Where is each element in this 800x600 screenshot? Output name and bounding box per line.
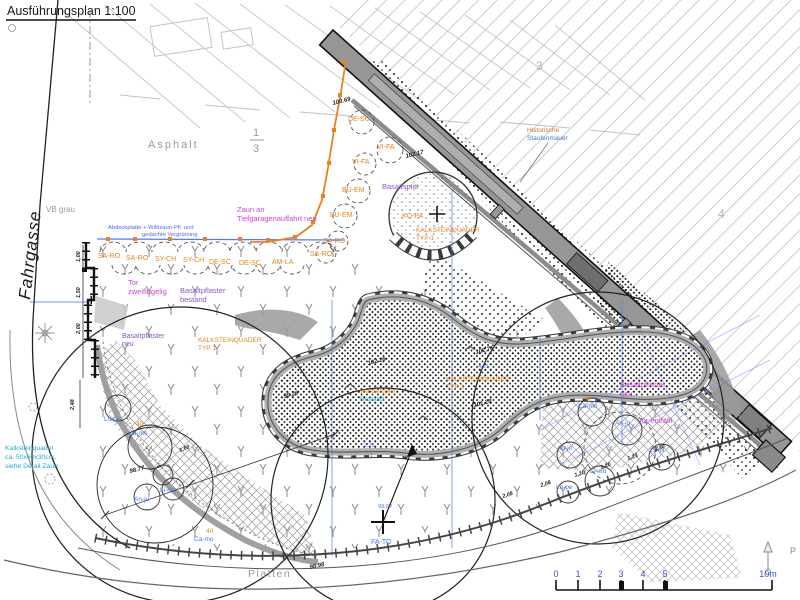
limestone-typ2: KALKSTEINQUADER: [446, 376, 510, 383]
leftbed-1: Ca-mo: [128, 430, 148, 437]
scale-2: 2: [597, 569, 602, 579]
leftbed-4: Ca-mo: [194, 536, 214, 543]
gate-note-2: zweiflügelig: [128, 287, 167, 296]
zone-4-label: 4: [718, 207, 725, 221]
elev-blue: 99.04: [378, 504, 392, 510]
basalt-bestand-1: Basaltpflaster: [180, 286, 226, 295]
tree-fato-label: FA-TO: [371, 539, 392, 546]
leftbed-2: An-ju: [134, 496, 150, 503]
limestone-note-3: siehe Detail Zaun: [5, 463, 58, 470]
limestone-note-1: Kalksteinquader: [5, 445, 54, 452]
shrub-0: DE-SC: [348, 116, 370, 123]
shrub-1: VI-FA: [377, 144, 395, 151]
dim-l0: 1,00: [76, 251, 82, 262]
limestone-typ1-left: KALKSTEINQUADER: [198, 337, 262, 344]
site-plan-canvas: Ausführungsplan 1:100 Fahrgasse Asphalt …: [0, 0, 800, 600]
dim-blue-b: 2,15: [364, 443, 375, 449]
basalt-bestand-2: bestand: [180, 295, 207, 304]
scale-bar: [556, 580, 772, 590]
vb-grau-label: VB grau: [46, 205, 75, 214]
basalt-neu-left-2: neu: [122, 341, 134, 348]
scale-3: 3: [618, 569, 623, 579]
zone-3-label: 3: [536, 59, 543, 73]
fraction-den: 3: [253, 143, 259, 155]
fraction-num: 1: [253, 127, 259, 139]
water-feature-2: Bestand: [360, 396, 384, 403]
plant-row-5: DE-SC: [239, 260, 261, 267]
sun-symbol: [35, 323, 55, 343]
dim-l1: 1,50: [76, 287, 82, 298]
fence-note-2: Tiefgaragenauffahrt neu: [237, 214, 317, 223]
elev-0: 100.69: [332, 97, 352, 107]
historic-wall-note-2: Staufenmauer: [527, 135, 569, 142]
scale-4: 4: [640, 569, 645, 579]
limestone-typ1-left-b: TYP 1: [198, 345, 216, 352]
basalt-neu-right-1: Basaltpflaster: [620, 380, 666, 389]
shrub-6: SA-RO: [310, 251, 333, 258]
scale-end: 10m: [759, 569, 777, 579]
plant-row-4: DE-SC: [209, 259, 231, 266]
scale-5: 5: [662, 569, 667, 579]
platten-label: Platten: [248, 568, 291, 580]
dim-blue-c: 1: [370, 453, 373, 459]
coping-note-1: Abdeckplatte + Wildzaun-Pfl. und: [108, 225, 194, 231]
leftbed-3: Li-mu: [160, 487, 177, 494]
basaltsplitt-label: Basaltsplitt: [382, 182, 419, 191]
shrub-3: BU-EM: [342, 187, 365, 194]
north-letter: P: [790, 546, 796, 556]
dim-l2: 2,00: [76, 323, 82, 335]
dim-blue-a: 4,31: [478, 364, 489, 370]
dim-l3: 2,48: [70, 398, 76, 411]
limestone-typ1-wall: KALKSTEINQUADER: [416, 227, 480, 234]
plan-drawing: Ausführungsplan 1:100 Fahrgasse Asphalt …: [0, 0, 800, 600]
gate-omitted-note: Tor entfällt: [638, 416, 674, 425]
leftbed-qty: 40: [136, 421, 144, 428]
shrub-4: BU-EM: [330, 212, 353, 219]
basalt-neu-right-2: neu: [620, 389, 633, 398]
street-label: Fahrgasse: [15, 210, 45, 301]
scale-1: 1: [575, 569, 580, 579]
plant-row-1: SA-RO: [126, 255, 149, 262]
scale-0: 0: [553, 569, 558, 579]
historic-wall-note-1: Historische: [527, 127, 560, 134]
rightbed-5: Lo-pe: [556, 484, 573, 491]
basalt-neu-left-1: Basaltpflaster: [122, 333, 165, 340]
leftbed-qty2: 40: [206, 528, 214, 535]
rightbed-2: An-ju: [557, 445, 573, 452]
plan-title: Ausführungsplan 1:100: [7, 4, 136, 18]
limestone-note-2: ca. 50x60x30cm,: [5, 454, 56, 461]
plant-row-2: SY-CH: [155, 256, 176, 263]
limestone-typ2-b: TYP 2: [446, 384, 464, 391]
asphalt-label: Asphalt: [148, 139, 199, 151]
rightbed-1: An-ju: [615, 420, 631, 427]
water-feature-1: Wasserspiel: [360, 388, 396, 395]
rightbed-qty: 40: [584, 395, 592, 402]
tree-kopa-label: KO-PA: [402, 213, 424, 220]
coping-note-2: gedachte Vergrünung: [142, 232, 197, 238]
limestone-typ1-wall-b: TYP 1: [416, 235, 434, 242]
shrub-5: SA-RO: [323, 238, 346, 245]
gate-note-1: Tor: [128, 278, 139, 287]
plant-row-6: AM-LA: [272, 259, 294, 266]
plant-row-0: SA-RO: [98, 253, 121, 260]
rightbed-0: Ca-mo: [578, 403, 598, 410]
plant-row-3: SY-CH: [183, 257, 204, 264]
shrub-2: VI-FA: [352, 159, 370, 166]
fence-note-1: Zaun an: [237, 205, 265, 214]
leftbed-0: Lo-pe: [104, 416, 121, 423]
